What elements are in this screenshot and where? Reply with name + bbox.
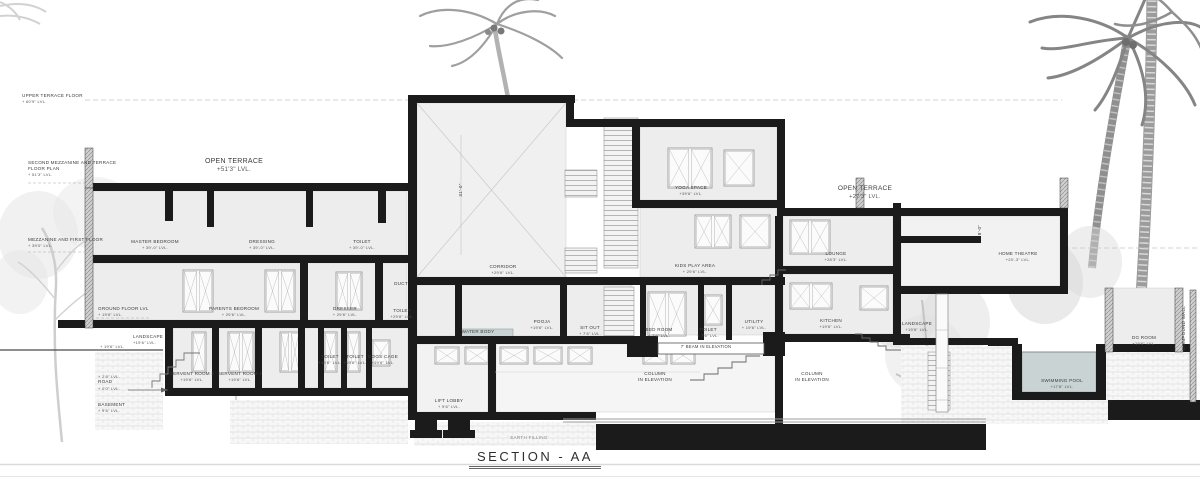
- window-symbol: [668, 148, 712, 188]
- window-symbol: [324, 332, 337, 372]
- window-symbol: [704, 295, 722, 325]
- window-symbol: [192, 332, 206, 372]
- window-symbol: [860, 286, 888, 310]
- window-symbol: [695, 215, 731, 248]
- window-symbol: [465, 347, 489, 364]
- window-symbol: [790, 283, 832, 309]
- top-left-frond: [0, 2, 46, 24]
- window-symbol: [183, 270, 213, 312]
- window-symbol: [280, 332, 300, 372]
- window-symbol: [228, 332, 254, 372]
- window-symbol: [435, 347, 459, 364]
- window-symbol: [648, 292, 686, 336]
- top-center-palm-tree: [420, 0, 562, 98]
- window-symbol: [724, 150, 754, 186]
- window-symbol: [500, 347, 528, 364]
- window-symbol: [347, 332, 360, 372]
- sheet-title: SECTION - AA: [469, 449, 601, 469]
- window-symbol: [740, 215, 770, 248]
- window-symbol: [568, 347, 592, 364]
- section-drawing-canvas: UPPER TERRACE FLOOR+ 60'9" LVL.SECOND ME…: [0, 0, 1200, 482]
- window-symbol: [265, 270, 295, 312]
- window-symbol: [534, 347, 562, 364]
- window-symbol: [372, 340, 390, 366]
- window-symbol: [790, 220, 830, 254]
- section-drawing: [0, 0, 1200, 482]
- window-symbol: [336, 272, 362, 310]
